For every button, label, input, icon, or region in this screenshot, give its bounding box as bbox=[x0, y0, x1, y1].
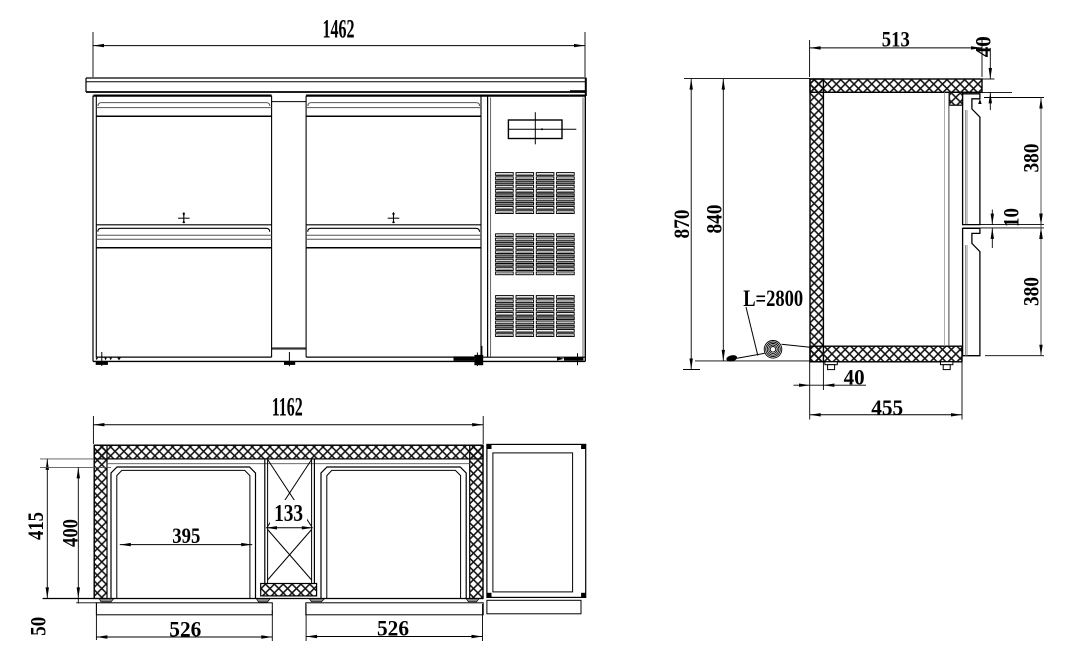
svg-text:380: 380 bbox=[1019, 144, 1044, 173]
svg-text:415: 415 bbox=[23, 512, 48, 540]
svg-text:50: 50 bbox=[26, 617, 51, 636]
svg-text:L=2800: L=2800 bbox=[743, 286, 803, 311]
svg-text:840: 840 bbox=[702, 205, 727, 234]
svg-text:10: 10 bbox=[999, 208, 1024, 227]
svg-text:455: 455 bbox=[871, 395, 903, 420]
svg-text:870: 870 bbox=[669, 210, 694, 239]
svg-text:1162: 1162 bbox=[272, 393, 303, 422]
svg-text:526: 526 bbox=[169, 616, 201, 641]
svg-text:133: 133 bbox=[274, 501, 303, 527]
svg-text:526: 526 bbox=[377, 615, 409, 640]
svg-text:40: 40 bbox=[844, 364, 865, 389]
svg-text:40: 40 bbox=[971, 36, 996, 57]
svg-text:395: 395 bbox=[172, 523, 200, 548]
svg-text:380: 380 bbox=[1019, 277, 1044, 306]
svg-text:1462: 1462 bbox=[323, 15, 355, 44]
svg-text:400: 400 bbox=[57, 519, 82, 547]
svg-text:513: 513 bbox=[882, 26, 910, 51]
